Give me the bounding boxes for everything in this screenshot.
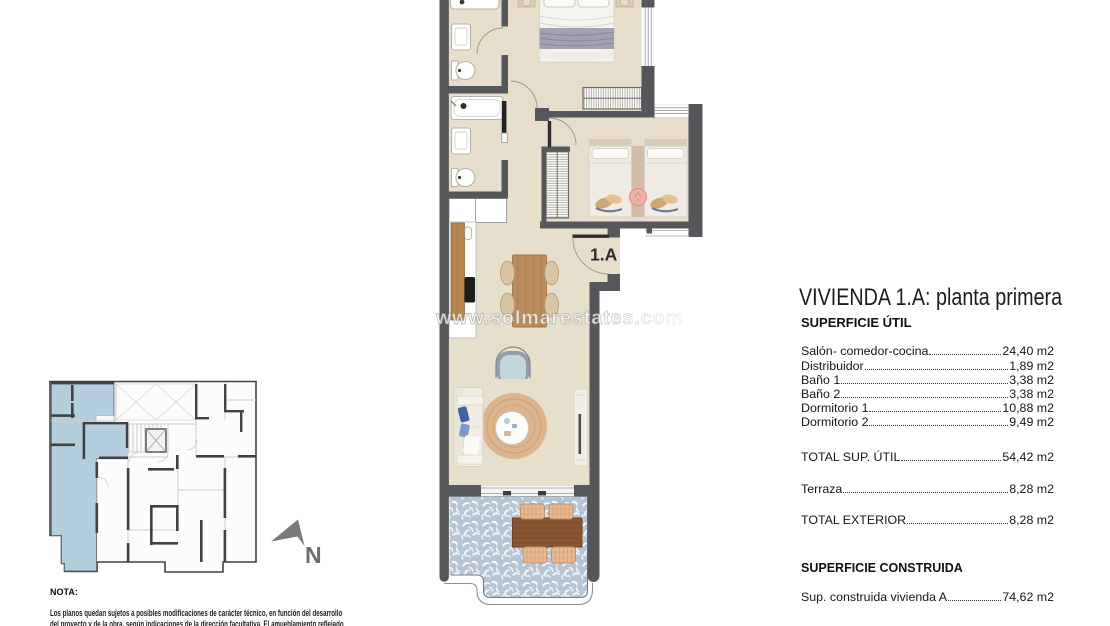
svg-text:N: N <box>305 542 322 568</box>
svg-text:www.solmarestates.com: www.solmarestates.com <box>435 307 684 329</box>
svg-text:1.A: 1.A <box>590 245 618 265</box>
